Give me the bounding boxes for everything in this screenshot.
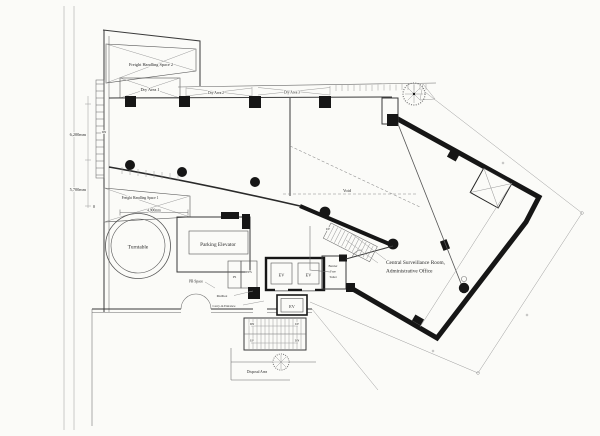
pb-space-label: PB Space: [189, 280, 203, 284]
central-label-line2: Administrative Office: [386, 268, 433, 275]
toilet-label-2: Free: [330, 270, 336, 274]
ev1-label: EV: [279, 273, 286, 278]
stair-dn-bottom: DN: [295, 339, 300, 343]
floor-plan-sheet: 6,200mm 5,700mm 0 DN Freight Handling Sp…: [0, 0, 600, 436]
ev3-label: EV: [289, 304, 296, 309]
ev2-label: EV: [306, 273, 313, 278]
toilet-label-3: Toilet: [329, 275, 337, 279]
carry-in-entrance-label: Carry-in Entrance: [213, 304, 237, 308]
stair-up-top: UP: [295, 322, 299, 326]
paper-background: [0, 0, 600, 436]
dry-area-2-label: Dry Area 2: [208, 91, 224, 95]
eps-label: EPS: [246, 270, 252, 274]
toilet-label-1: Barrier: [328, 264, 338, 268]
dry-area-3-label: Dry Area 3: [284, 91, 300, 95]
stair-dn-label: DN: [102, 130, 107, 134]
stair-up-bottom: UP: [250, 339, 254, 343]
disposal-area-label: Disposal Area: [247, 370, 268, 374]
turntable-label: Turntable: [128, 245, 149, 251]
elevator-3: EV: [277, 295, 307, 315]
dry-area-1-label: Dry Area 1: [140, 87, 159, 92]
void-label: Void: [343, 188, 352, 193]
ps-label: PS: [233, 275, 237, 279]
stair-dn-top: DN: [250, 322, 255, 326]
elevator-core: EV EV: [266, 258, 324, 291]
diagonal-stair-up-label: UP: [326, 227, 330, 231]
floor-plan-drawing: 6,200mm 5,700mm 0 DN Freight Handling Sp…: [0, 0, 600, 436]
parking-elevator-label: Parking Elevator: [200, 242, 236, 248]
mailbox-label: Mailbox: [217, 294, 228, 298]
freight-handling-space-1-label: Freight Handling Space 1: [122, 196, 159, 200]
central-label-line1: Central Surveillance Room,: [386, 260, 445, 266]
dimension-zero: 0: [93, 204, 95, 209]
freight-handling-space-2-label: Freight Handling Space 2: [129, 62, 173, 67]
